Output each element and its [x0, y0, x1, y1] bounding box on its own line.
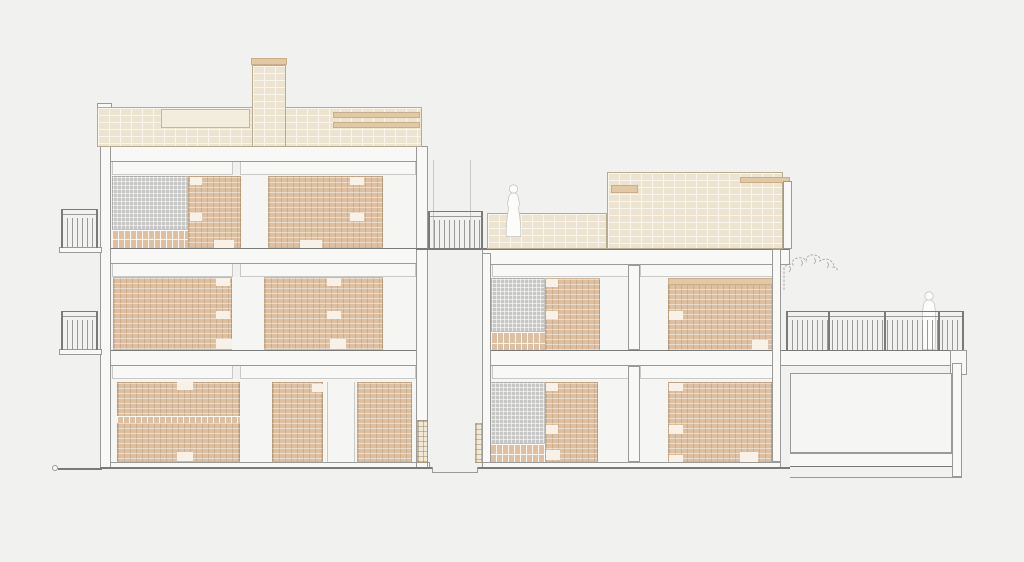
railing-balusters — [787, 320, 963, 351]
lintel-opening — [327, 278, 341, 286]
railing-post — [884, 312, 886, 352]
lintel-opening — [669, 383, 683, 391]
lintel-opening — [350, 177, 364, 185]
ceiling-beam — [492, 265, 629, 277]
door-frame-line — [354, 382, 355, 462]
balcony-railing — [61, 209, 98, 248]
stair-pit — [432, 467, 478, 473]
footing-line — [790, 477, 962, 478]
railing-balusters — [429, 220, 482, 248]
parapet-end-wall — [783, 181, 792, 249]
exterior-wall — [100, 146, 111, 468]
lintel-opening — [190, 213, 202, 221]
railing-post — [786, 312, 788, 352]
ground-line — [478, 467, 790, 469]
ground-line — [58, 468, 102, 470]
ceiling-beam — [240, 162, 416, 175]
ground-line — [100, 467, 432, 469]
parapet-tan-band — [333, 122, 420, 128]
lintel-opening — [177, 382, 193, 390]
brick-infill-panel — [668, 382, 772, 462]
railing-post — [938, 312, 940, 352]
railing-rail — [61, 316, 98, 317]
basement-right-wall — [952, 363, 962, 477]
parapet-tan-patch — [611, 185, 638, 193]
chimney-cap — [251, 58, 287, 65]
ceiling-beam — [240, 366, 416, 379]
lintel-opening — [546, 425, 558, 434]
lintel-opening — [669, 425, 683, 434]
lintel-opening — [546, 279, 558, 287]
stair-wall-hatch — [417, 420, 428, 463]
walkway-slab — [780, 350, 952, 366]
floor-slab — [482, 350, 790, 366]
railing-post — [428, 212, 430, 249]
ceiling-beam — [112, 264, 233, 277]
roof-parapet-brick-wall — [607, 172, 783, 249]
ceiling-beam — [240, 264, 416, 277]
chimney — [252, 65, 286, 147]
brick-infill-panel — [264, 277, 383, 350]
lintel-opening — [669, 311, 683, 320]
ceiling-beam — [640, 265, 773, 277]
railing-post — [96, 210, 98, 248]
lintel-opening — [312, 384, 324, 392]
brick-infill-panel — [268, 176, 383, 248]
railing-rail — [61, 214, 98, 215]
lintel-opening — [669, 455, 683, 462]
lintel-opening — [740, 452, 758, 462]
railing-post — [61, 312, 63, 350]
railing-post — [962, 312, 964, 352]
person-figure — [501, 184, 526, 237]
floor-slab — [100, 350, 428, 366]
railing-rail — [428, 216, 483, 217]
door-frame-line — [327, 382, 328, 462]
lintel-opening — [214, 240, 234, 248]
lintel-opening — [546, 311, 558, 319]
stair-core-wall — [482, 253, 491, 467]
brick-course-strip — [490, 444, 545, 454]
railing-balusters — [62, 218, 97, 247]
lintel-opening — [327, 311, 341, 319]
parapet-tan-band — [333, 112, 420, 118]
brick-joint-band — [117, 416, 240, 423]
lintel-opening — [546, 450, 560, 460]
balcony-railing — [61, 311, 98, 350]
lintel-opening — [216, 339, 232, 349]
brick-infill-panel — [357, 382, 412, 462]
parapet-inner-panel — [161, 109, 250, 128]
brick-course-strip — [491, 332, 545, 343]
ceiling-beam — [640, 366, 773, 379]
brick-top-course — [668, 278, 773, 285]
basement-room — [790, 373, 952, 453]
lintel-opening — [300, 240, 322, 248]
lintel-opening — [330, 339, 346, 349]
lintel-opening — [177, 452, 193, 461]
brick-course-strip — [112, 239, 188, 248]
interior-wall — [628, 265, 640, 350]
railing-post — [96, 312, 98, 350]
lintel-opening — [216, 311, 230, 319]
architectural-section-canvas — [0, 0, 1024, 562]
brick-infill-panel — [272, 382, 323, 462]
brick-infill-panel — [188, 176, 241, 248]
floor-slab — [100, 248, 428, 264]
brick-infill-panel — [113, 277, 232, 350]
walkway-railing — [786, 311, 964, 352]
railing-balusters — [62, 320, 97, 349]
lintel-opening — [216, 278, 230, 286]
gray-block-panel — [490, 382, 545, 444]
roof-slab — [482, 249, 790, 265]
interior-wall — [628, 366, 640, 462]
gray-block-panel — [112, 176, 188, 230]
brick-course-strip — [112, 230, 188, 239]
ceiling-beam — [492, 366, 629, 379]
lintel-opening — [752, 340, 768, 350]
lintel-opening — [546, 383, 558, 391]
brick-course-strip — [490, 454, 545, 462]
railing-post — [828, 312, 830, 352]
lintel-opening — [350, 213, 364, 221]
railing-post — [481, 212, 483, 249]
ceiling-beam — [112, 162, 233, 175]
railing-post — [61, 210, 63, 248]
lintel-opening — [190, 177, 202, 185]
roof-slab — [100, 146, 428, 162]
basement-base-slab — [790, 453, 952, 467]
terrace-railing — [428, 211, 483, 249]
ceiling-beam — [112, 366, 233, 379]
climbing-plant — [781, 252, 839, 292]
gray-block-panel — [491, 278, 545, 332]
